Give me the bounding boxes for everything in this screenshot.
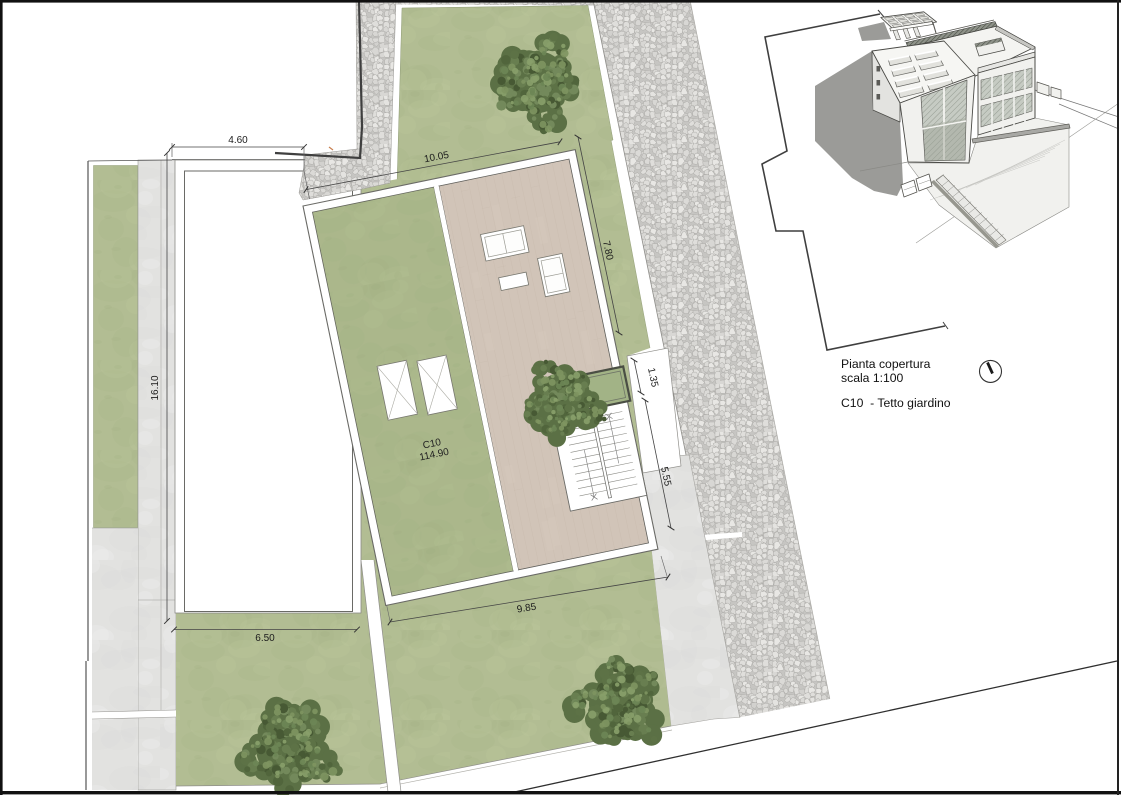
svg-text:16.10: 16.10 bbox=[150, 375, 161, 400]
svg-text:4.60: 4.60 bbox=[228, 135, 248, 146]
svg-text:scala 1:100: scala 1:100 bbox=[841, 371, 904, 385]
svg-text:6.50: 6.50 bbox=[255, 633, 275, 644]
svg-text:Pianta copertura: Pianta copertura bbox=[841, 357, 931, 371]
svg-text:C10 - Tetto giardino: C10 - Tetto giardino bbox=[841, 396, 951, 410]
